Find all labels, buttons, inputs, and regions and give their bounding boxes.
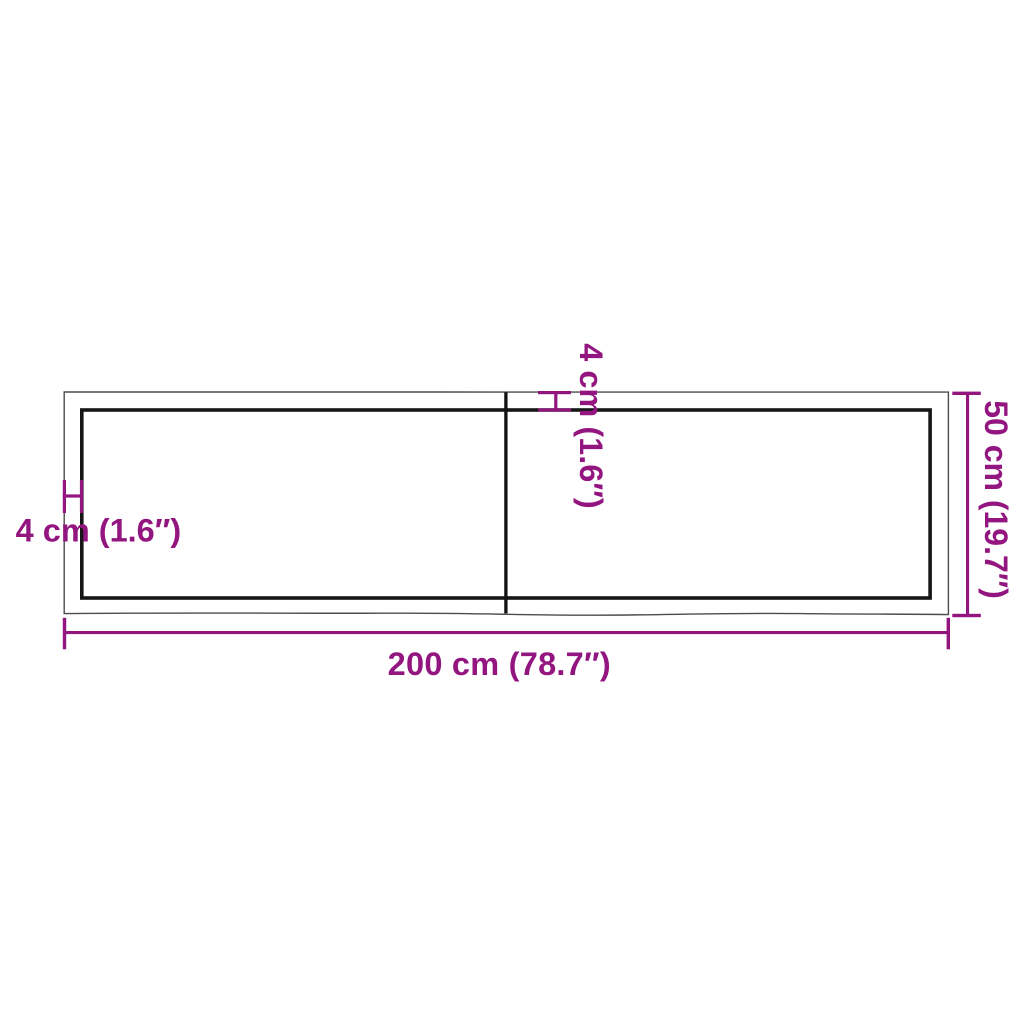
svg-text:200 cm (78.7″): 200 cm (78.7″) [388,646,611,682]
svg-text:50 cm (19.7″): 50 cm (19.7″) [978,400,1014,599]
svg-text:4 cm (1.6″): 4 cm (1.6″) [16,513,182,549]
svg-text:4 cm (1.6″): 4 cm (1.6″) [573,343,609,509]
